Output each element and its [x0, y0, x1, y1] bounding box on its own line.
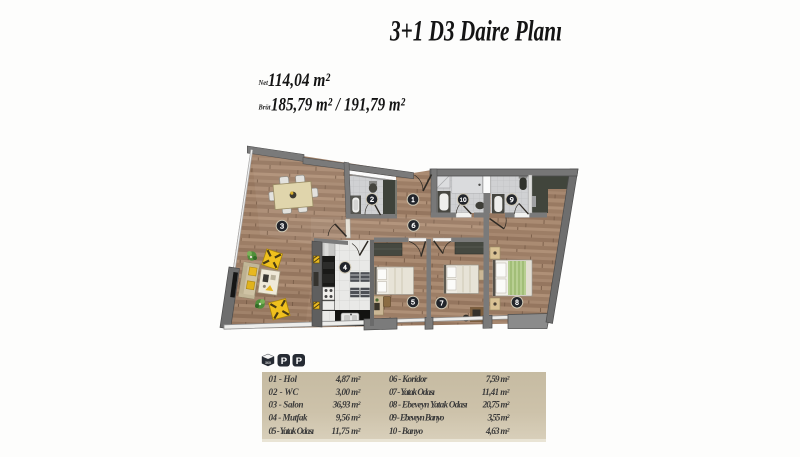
svg-text:09 - Ebeveyn Banyo: 09 - Ebeveyn Banyo [389, 412, 445, 422]
svg-text:114,04 m²: 114,04 m² [268, 70, 331, 91]
svg-text:9,56 m²: 9,56 m² [336, 412, 361, 422]
svg-text:08 - Ebeveyn Yatak Odası: 08 - Ebeveyn Yatak Odası [389, 400, 468, 410]
svg-text:03 - Salon: 03 - Salon [269, 400, 304, 410]
svg-text:20,75 m²: 20,75 m² [482, 400, 510, 410]
svg-text:P: P [281, 356, 288, 367]
svg-text:185,79 m² / 191,79 m²: 185,79 m² / 191,79 m² [271, 95, 406, 116]
svg-text:Brüt: Brüt [258, 104, 272, 112]
svg-text:06 - Koridor: 06 - Koridor [389, 374, 428, 384]
svg-text:02 - WC: 02 - WC [269, 387, 300, 397]
svg-text:11,75 m²: 11,75 m² [332, 426, 361, 436]
svg-text:7,59 m²: 7,59 m² [486, 374, 510, 384]
svg-text:11,41 m²: 11,41 m² [482, 387, 510, 397]
svg-text:10 - Banyo: 10 - Banyo [389, 426, 424, 436]
svg-text:P: P [296, 356, 303, 367]
svg-text:360: 360 [265, 361, 271, 365]
svg-text:4,87 m²: 4,87 m² [335, 374, 361, 384]
svg-text:36,93 m²: 36,93 m² [332, 400, 361, 410]
svg-text:4,63 m²: 4,63 m² [485, 426, 510, 436]
svg-text:01 - Hol: 01 - Hol [269, 374, 298, 384]
svg-text:04 - Mutfak: 04 - Mutfak [269, 412, 309, 422]
svg-text:3,00 m²: 3,00 m² [335, 387, 361, 397]
svg-text:07 - Yatak Odası: 07 - Yatak Odası [389, 387, 435, 397]
svg-text:3+1 D3 Daire Planı: 3+1 D3 Daire Planı [389, 15, 562, 48]
svg-text:3,55 m²: 3,55 m² [487, 412, 510, 422]
svg-text:05 - Yatak Odası: 05 - Yatak Odası [269, 426, 315, 436]
